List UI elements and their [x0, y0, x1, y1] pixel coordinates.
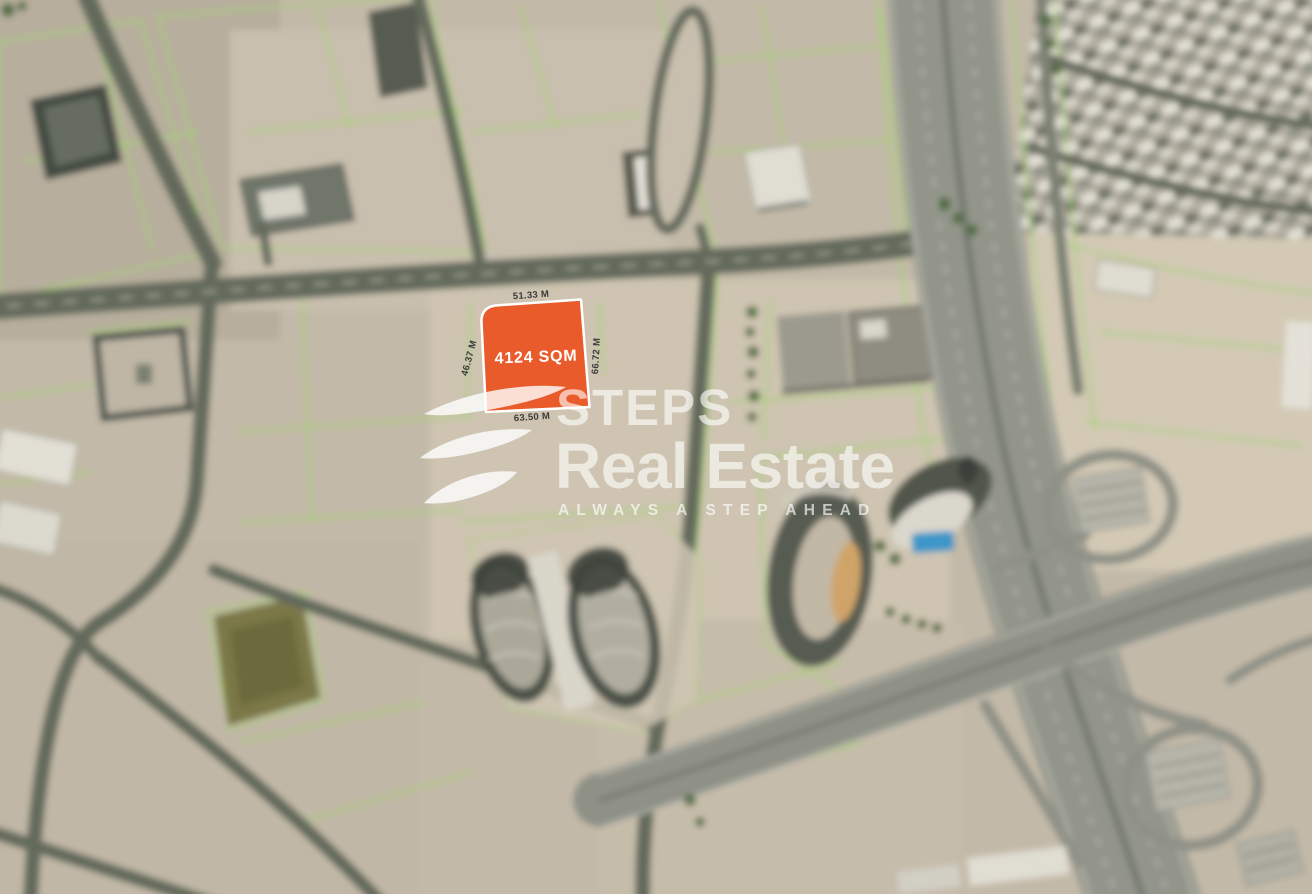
swimming-pool	[911, 531, 954, 554]
watermark-brand-line1: STEPS	[556, 379, 733, 436]
dimension-label-right: 66.72 M	[590, 338, 603, 375]
listing-map-image: 4124 SQM 51.33 M 46.37 M 66.72 M 63.50 M…	[0, 0, 1312, 894]
plot-area-label: 4124 SQM	[494, 348, 577, 368]
watermark-tagline: ALWAYS A STEP AHEAD	[558, 502, 877, 519]
satellite-map: 4124 SQM 51.33 M 46.37 M 66.72 M 63.50 M…	[0, 0, 1312, 894]
watermark-brand-line2: Real Estate	[555, 430, 895, 502]
